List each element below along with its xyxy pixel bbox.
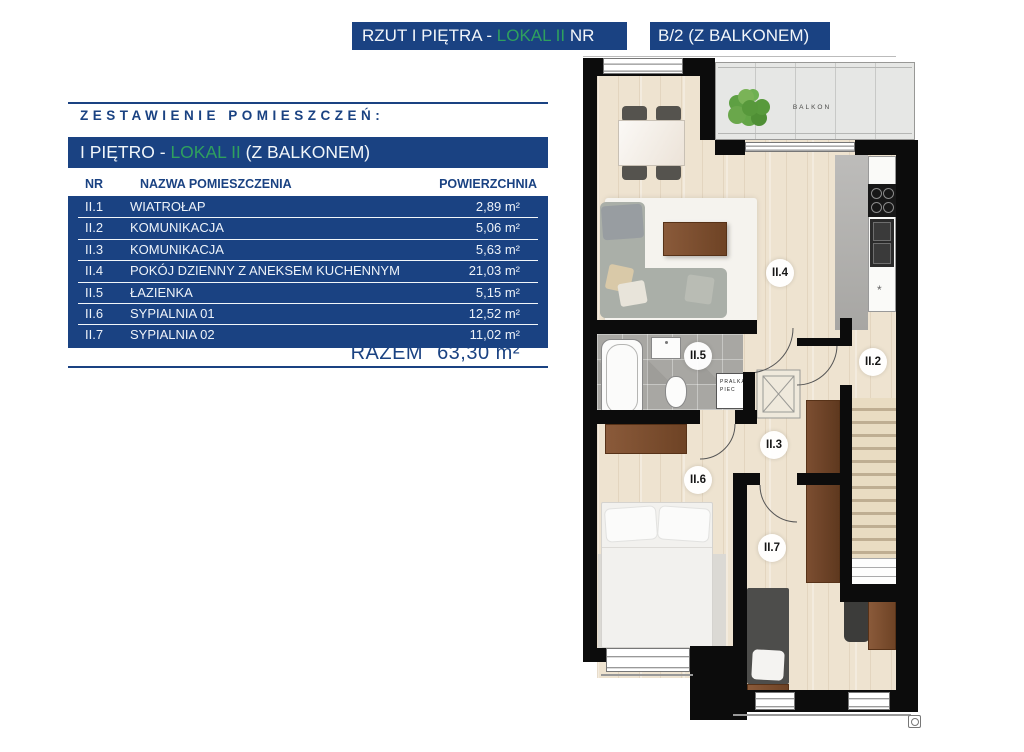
floorplan-sheet: RZUT I PIĘTRA - LOKAL II NR B/2 (Z BALKO… bbox=[0, 0, 1024, 752]
subheader-lokal: LOKAL II bbox=[170, 142, 240, 162]
window-sill bbox=[733, 714, 911, 716]
table-row: II.2KOMUNIKACJA5,06 m² bbox=[78, 218, 538, 239]
title-bar-right: B/2 (Z BALKONEM) bbox=[650, 22, 830, 50]
title-part1: RZUT I PIĘTRA - bbox=[362, 26, 497, 45]
row-area: 5,06 m² bbox=[425, 218, 538, 238]
wall bbox=[797, 473, 852, 485]
table-row: II.1WIATROŁAP2,89 m² bbox=[78, 197, 538, 218]
row-name: WIATROŁAP bbox=[130, 197, 425, 217]
title-unit: B/2 (Z BALKONEM) bbox=[658, 26, 809, 45]
room-label-ii2: II.2 bbox=[859, 348, 887, 376]
row-name: KOMUNIKACJA bbox=[130, 218, 425, 238]
row-nr: II.2 bbox=[78, 218, 130, 238]
wall bbox=[896, 140, 918, 712]
row-area: 12,52 m² bbox=[425, 304, 538, 324]
row-nr: II.5 bbox=[78, 283, 130, 303]
row-area: 5,15 m² bbox=[425, 283, 538, 303]
title-part2: NR bbox=[565, 26, 594, 45]
window bbox=[603, 58, 683, 74]
window-sill bbox=[601, 674, 693, 676]
wall bbox=[733, 480, 747, 648]
title-bar-left: RZUT I PIĘTRA - LOKAL II NR bbox=[352, 22, 627, 50]
wall bbox=[715, 140, 745, 155]
balcony-door-window bbox=[745, 142, 855, 152]
row-nr: II.6 bbox=[78, 304, 130, 324]
wall bbox=[583, 58, 597, 660]
wall bbox=[700, 60, 715, 140]
room-table: II.1WIATROŁAP2,89 m² II.2KOMUNIKACJA5,06… bbox=[68, 196, 548, 348]
row-nr: II.4 bbox=[78, 261, 130, 281]
floor-subheader-bar: I PIĘTRO - LOKAL II (Z BALKONEM) bbox=[68, 137, 548, 168]
col-nr: NR bbox=[68, 175, 140, 194]
row-area: 21,03 m² bbox=[425, 261, 538, 281]
wall bbox=[690, 646, 747, 720]
wall bbox=[840, 584, 896, 602]
room-label-ii7: II.7 bbox=[758, 534, 786, 562]
wall bbox=[735, 410, 757, 424]
wall bbox=[583, 648, 606, 662]
table-row: II.4POKÓJ DZIENNY Z ANEKSEM KUCHENNYM21,… bbox=[78, 261, 538, 282]
subheader-part2: (Z BALKONEM) bbox=[241, 142, 370, 162]
table-header-row: NR NAZWA POMIESZCZENIA POWIERZCHNIA bbox=[68, 175, 548, 194]
outline bbox=[583, 56, 896, 57]
window bbox=[755, 692, 795, 710]
total-label: RAZEM bbox=[351, 342, 424, 364]
row-area: 2,89 m² bbox=[425, 197, 538, 217]
room-label-ii4: II.4 bbox=[766, 259, 794, 287]
exterior-mask bbox=[583, 678, 690, 728]
room-label-ii3: II.3 bbox=[760, 431, 788, 459]
window bbox=[848, 692, 890, 710]
total-value: 63,30 m² bbox=[437, 342, 520, 364]
col-name: NAZWA POMIESZCZENIA bbox=[140, 175, 407, 194]
wall bbox=[597, 410, 700, 424]
wall bbox=[840, 318, 852, 346]
drain-detail bbox=[908, 715, 921, 728]
title-lokal: LOKAL II bbox=[497, 26, 565, 45]
row-name: SYPIALNIA 01 bbox=[130, 304, 425, 324]
row-area: 5,63 m² bbox=[425, 240, 538, 260]
col-area: POWIERZCHNIA bbox=[407, 175, 548, 194]
room-label-ii5: II.5 bbox=[684, 342, 712, 370]
row-name: POKÓJ DZIENNY Z ANEKSEM KUCHENNYM bbox=[130, 261, 425, 281]
total-row: RAZEM63,30 m² bbox=[68, 342, 520, 365]
table-row: II.6SYPIALNIA 0112,52 m² bbox=[78, 304, 538, 325]
table-row: II.5ŁAZIENKA5,15 m² bbox=[78, 283, 538, 304]
room-label-ii6: II.6 bbox=[684, 466, 712, 494]
row-name: ŁAZIENKA bbox=[130, 283, 425, 303]
row-name: KOMUNIKACJA bbox=[130, 240, 425, 260]
table-row: II.3KOMUNIKACJA5,63 m² bbox=[78, 240, 538, 261]
wall bbox=[583, 320, 757, 334]
row-nr: II.1 bbox=[78, 197, 130, 217]
row-nr: II.3 bbox=[78, 240, 130, 260]
divider-top bbox=[68, 102, 548, 104]
wall bbox=[855, 140, 896, 155]
floor-plan: BALKON * PRALKA PIE bbox=[583, 56, 923, 728]
divider-bottom bbox=[68, 366, 548, 368]
subheader-part1: I PIĘTRO - bbox=[80, 142, 170, 162]
panel-heading: ZESTAWIENIE POMIESZCZEŃ: bbox=[80, 108, 384, 123]
window bbox=[606, 648, 690, 672]
